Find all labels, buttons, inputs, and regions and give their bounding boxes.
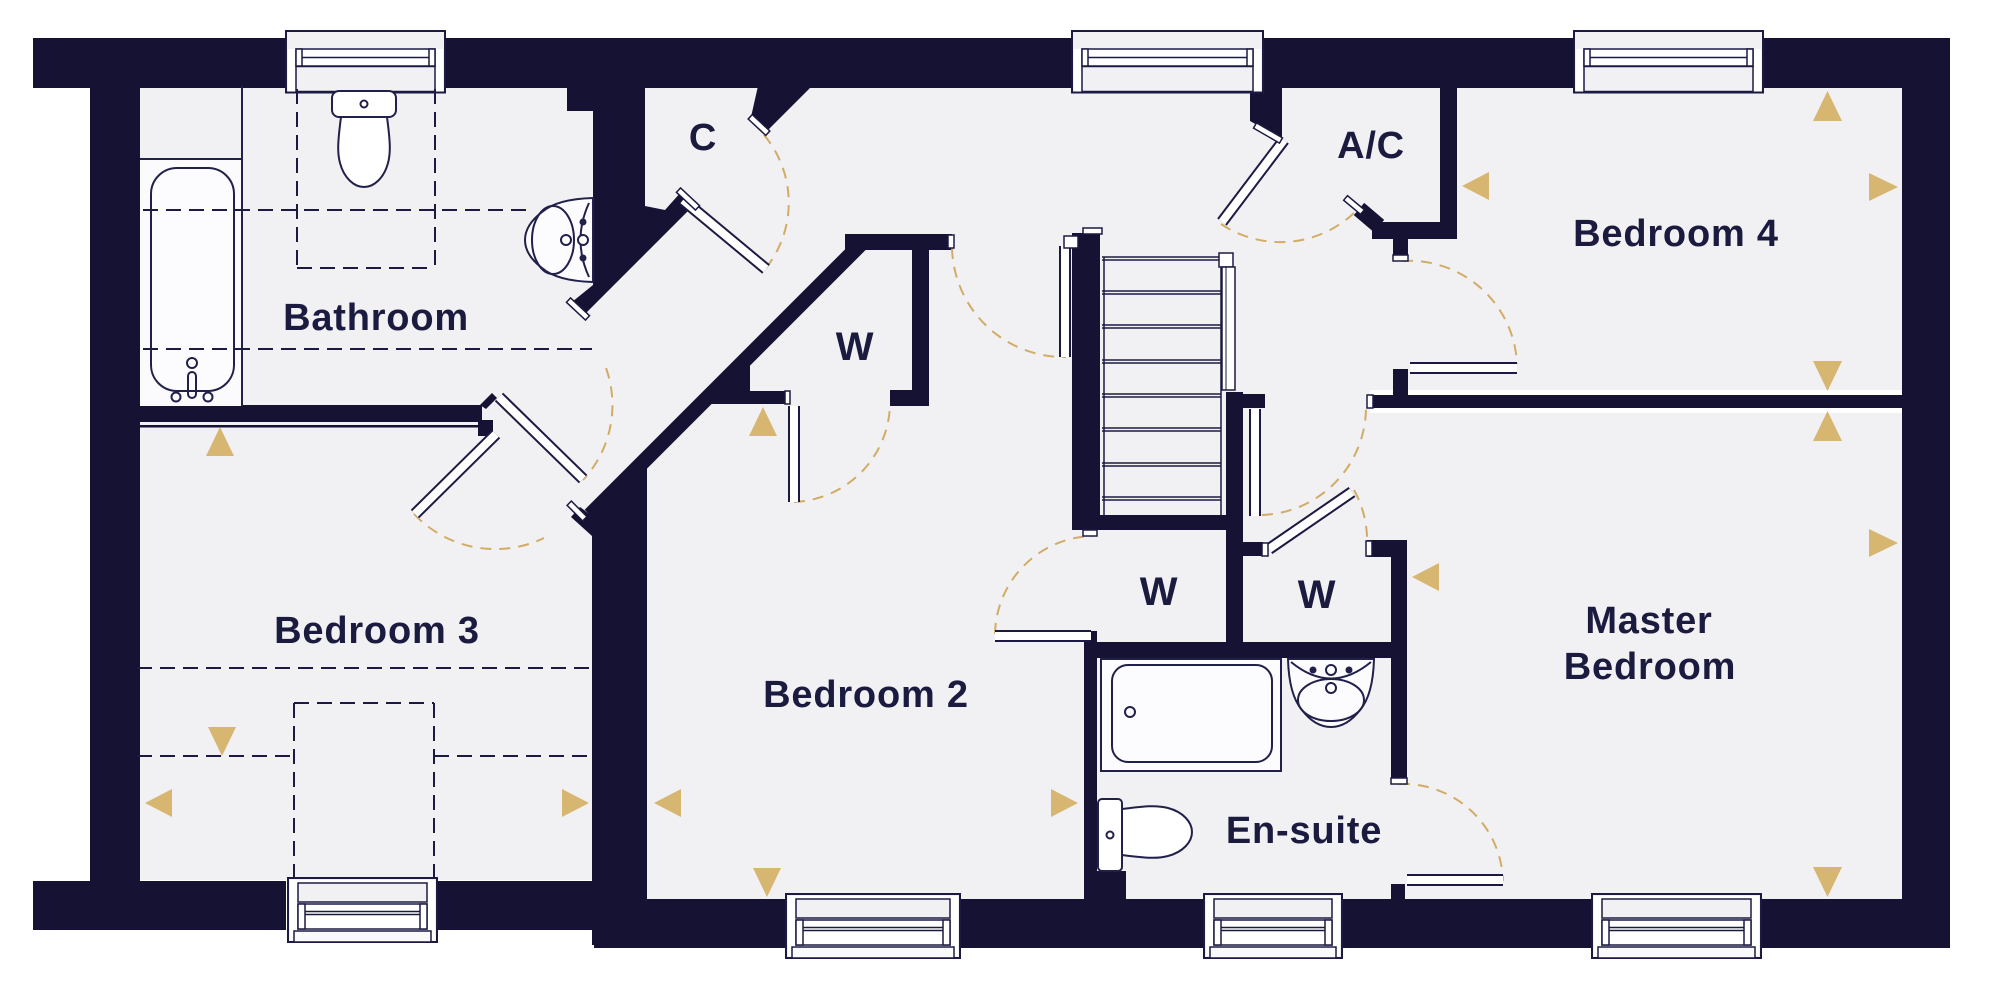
- svg-text:Bedroom 3: Bedroom 3: [274, 610, 480, 652]
- svg-text:En-suite: En-suite: [1226, 810, 1382, 852]
- svg-text:Bedroom: Bedroom: [1564, 646, 1736, 688]
- svg-text:Bedroom 2: Bedroom 2: [763, 674, 969, 716]
- svg-text:W: W: [1140, 570, 1179, 614]
- svg-text:Bedroom 4: Bedroom 4: [1573, 213, 1779, 255]
- svg-text:W: W: [1298, 573, 1337, 617]
- svg-text:W: W: [836, 325, 875, 369]
- svg-text:Master: Master: [1585, 600, 1712, 642]
- svg-text:C: C: [689, 117, 717, 159]
- svg-text:A/C: A/C: [1337, 125, 1405, 167]
- svg-text:Bathroom: Bathroom: [283, 297, 469, 339]
